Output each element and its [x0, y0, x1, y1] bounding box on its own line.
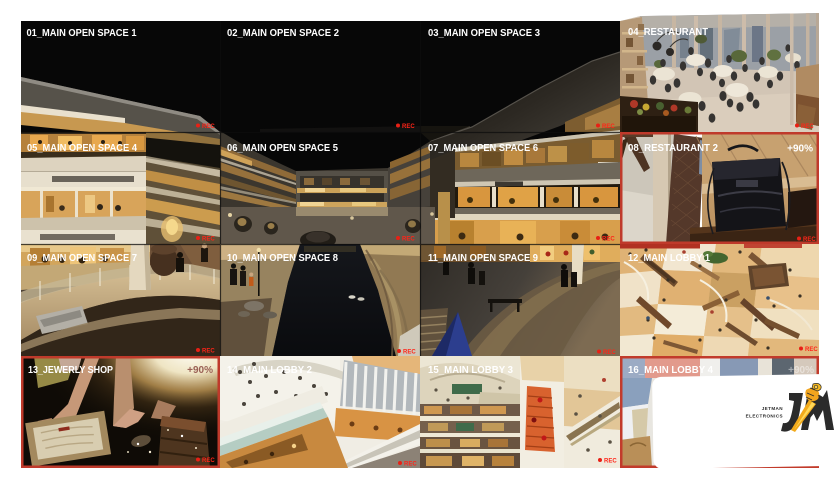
- svg-text:05_MAIN OPEN SPACE 4: 05_MAIN OPEN SPACE 4: [27, 143, 137, 154]
- svg-text:REC: REC: [402, 124, 415, 130]
- svg-text:12_MAIN LOBBY 1: 12_MAIN LOBBY 1: [628, 253, 710, 264]
- svg-text:13_JEWERLY SHOP: 13_JEWERLY SHOP: [28, 365, 113, 376]
- svg-text:+90%: +90%: [787, 144, 813, 155]
- svg-text:REC: REC: [202, 458, 215, 464]
- svg-text:REC: REC: [604, 459, 617, 465]
- svg-text:REC: REC: [805, 347, 818, 353]
- svg-text:04_RESTAURANT: 04_RESTAURANT: [628, 27, 708, 38]
- svg-text:07_MAIN OPEN SPACE 6: 07_MAIN OPEN SPACE 6: [428, 143, 538, 154]
- svg-text:REC: REC: [404, 462, 417, 468]
- svg-text:02_MAIN OPEN SPACE 2: 02_MAIN OPEN SPACE 2: [227, 28, 339, 39]
- svg-text:11_MAIN OPEN SPACE 9: 11_MAIN OPEN SPACE 9: [428, 253, 538, 264]
- svg-text:REC: REC: [603, 350, 616, 356]
- svg-text:REC: REC: [202, 237, 215, 243]
- svg-text:03_MAIN OPEN SPACE 3: 03_MAIN OPEN SPACE 3: [428, 28, 540, 39]
- svg-text:REC: REC: [602, 124, 615, 130]
- svg-text:REC: REC: [403, 350, 416, 356]
- svg-text:10_MAIN OPEN SPACE 8: 10_MAIN OPEN SPACE 8: [227, 253, 338, 264]
- svg-text:REC: REC: [402, 237, 415, 243]
- svg-text:ELECTRONICS: ELECTRONICS: [746, 414, 783, 419]
- svg-text:16_MAIN LOBBY 4: 16_MAIN LOBBY 4: [628, 365, 713, 376]
- svg-text:REC: REC: [202, 349, 215, 355]
- svg-text:REC: REC: [803, 237, 816, 243]
- svg-text:15_MAIN LOBBY 3: 15_MAIN LOBBY 3: [428, 365, 513, 376]
- svg-text:09_MAIN OPEN SPACE 7: 09_MAIN OPEN SPACE 7: [27, 253, 137, 264]
- svg-text:06_MAIN OPEN SPACE 5: 06_MAIN OPEN SPACE 5: [227, 143, 338, 154]
- svg-text:08_RESTAURANT 2: 08_RESTAURANT 2: [628, 143, 718, 154]
- svg-text:+90%: +90%: [187, 365, 213, 376]
- svg-text:14_MAIN LOBBY 2: 14_MAIN LOBBY 2: [227, 365, 312, 376]
- svg-text:REC: REC: [202, 124, 215, 130]
- svg-text:REC: REC: [801, 124, 814, 130]
- svg-text:REC: REC: [602, 237, 615, 243]
- svg-text:JETMAN: JETMAN: [762, 406, 784, 411]
- svg-text:01_MAIN OPEN SPACE 1: 01_MAIN OPEN SPACE 1: [27, 28, 137, 39]
